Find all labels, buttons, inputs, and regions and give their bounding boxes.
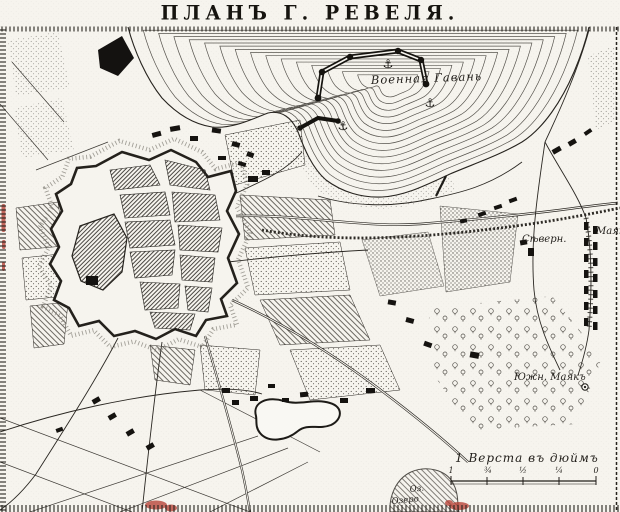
scale-tick-0: 0: [593, 466, 598, 475]
lake-label-abbr: Оз.: [409, 484, 424, 495]
scale-caption: 1 Верста въ дюймъ: [455, 451, 599, 465]
map-page: 1 ¾ ½ ¼ 0 1 Верста въ дюймъ Военная Гава…: [0, 0, 620, 512]
anchor-icon: ⚓: [425, 96, 436, 110]
scale-tick-34: ¾: [484, 466, 492, 475]
castle: [86, 276, 98, 285]
scale-tick-12: ½: [519, 466, 527, 475]
north-lighthouse-label-1: Сѣверн.: [522, 234, 566, 245]
map-title: ПЛАНЪ Г. РЕВЕЛЯ.: [0, 0, 620, 27]
anchor-icon: ⚓: [338, 119, 349, 133]
south-lighthouse-label: Южн. Маякъ: [513, 372, 586, 383]
map-artwork: 1 ¾ ½ ¼ 0 1 Верста въ дюймъ Военная Гава…: [0, 0, 620, 512]
anchor-icon: ⚓: [383, 57, 394, 71]
scale-tick-14: ¼: [555, 466, 563, 475]
scale-tick-1: 1: [448, 466, 453, 475]
